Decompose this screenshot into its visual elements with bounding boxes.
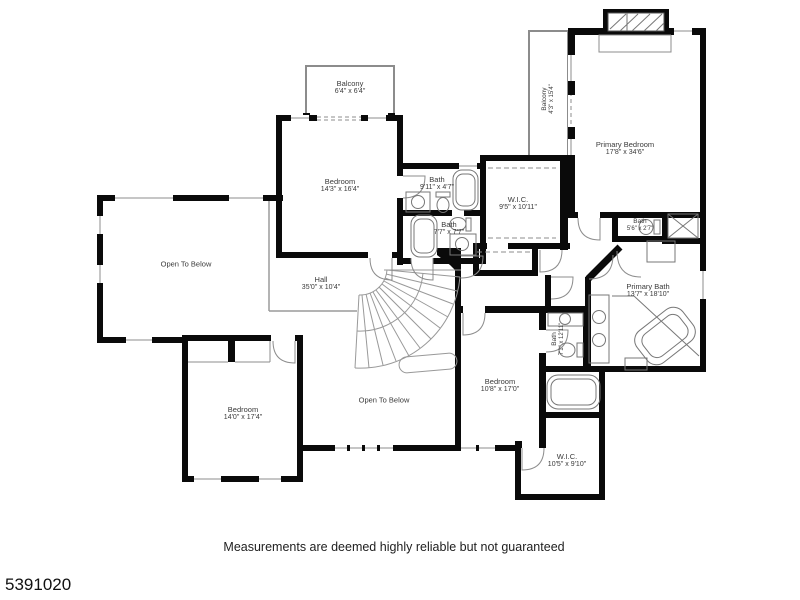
angled-walls <box>588 247 620 279</box>
listing-id: 5391020 <box>5 575 71 595</box>
curved-staircase <box>355 270 461 373</box>
disclaimer-text: Measurements are deemed highly reliable … <box>223 540 564 554</box>
floorplan-drawing <box>0 0 800 600</box>
balcony-walls <box>306 31 568 157</box>
floorplan-page: Balcony6'4" x 6'4" Bedroom14'3" x 16'4" … <box>0 0 800 600</box>
